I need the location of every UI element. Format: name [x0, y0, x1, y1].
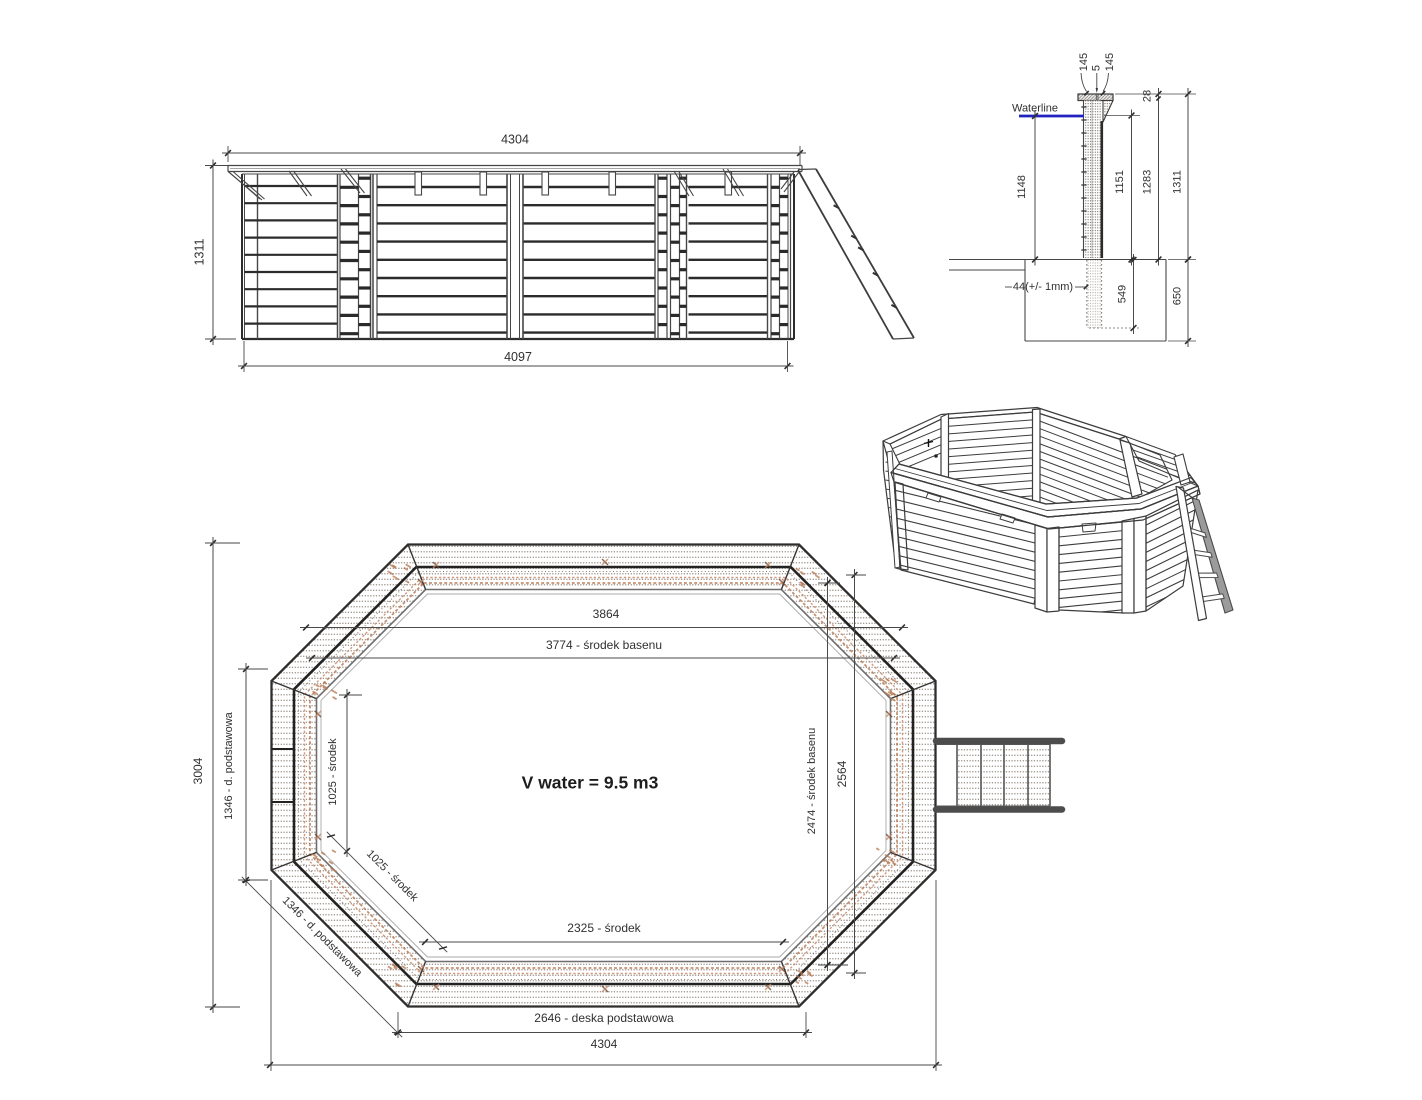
svg-text:1346 - d. podstawowa: 1346 - d. podstawowa — [223, 711, 235, 820]
svg-text:1311: 1311 — [1171, 170, 1183, 194]
svg-text:145: 145 — [1078, 53, 1090, 71]
svg-text:2474 - środek basenu: 2474 - środek basenu — [806, 728, 818, 834]
svg-text:2646 - deska podstawowa: 2646 - deska podstawowa — [534, 1011, 674, 1025]
svg-text:650: 650 — [1171, 287, 1183, 305]
svg-text:2564: 2564 — [835, 760, 849, 787]
svg-text:28: 28 — [1141, 90, 1153, 102]
svg-text:1283: 1283 — [1141, 170, 1153, 194]
svg-text:3774 - środek basenu: 3774 - środek basenu — [546, 638, 662, 652]
svg-text:1025 - środek: 1025 - środek — [327, 738, 339, 806]
svg-text:4304: 4304 — [501, 132, 529, 146]
svg-text:1151: 1151 — [1114, 170, 1126, 194]
svg-text:V water = 9.5 m3: V water = 9.5 m3 — [522, 773, 659, 793]
svg-text:44(+/- 1mm): 44(+/- 1mm) — [1013, 281, 1073, 293]
svg-text:145: 145 — [1104, 53, 1116, 71]
svg-text:5: 5 — [1090, 65, 1102, 71]
svg-text:4304: 4304 — [591, 1037, 618, 1051]
svg-text:549: 549 — [1116, 285, 1128, 303]
svg-text:4097: 4097 — [504, 350, 532, 364]
svg-text:1311: 1311 — [192, 239, 206, 266]
svg-text:3004: 3004 — [191, 757, 205, 784]
svg-text:1148: 1148 — [1016, 175, 1028, 199]
svg-text:3864: 3864 — [593, 607, 620, 621]
svg-text:2325 - środek: 2325 - środek — [567, 921, 641, 935]
